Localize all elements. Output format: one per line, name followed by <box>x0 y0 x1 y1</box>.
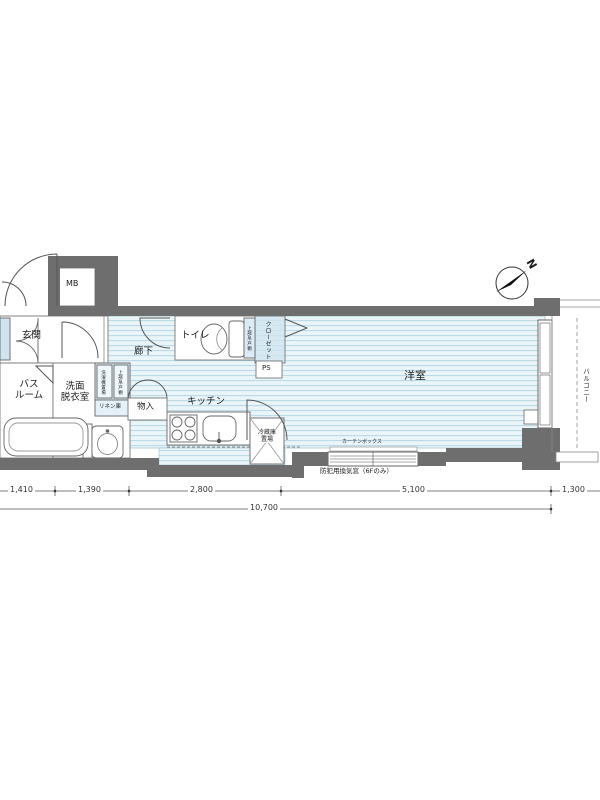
room-label-storage: 物入 <box>137 402 154 412</box>
compass-icon <box>496 267 528 299</box>
room-label-washroom: 洗面 脱衣室 <box>58 381 92 403</box>
sink <box>203 416 236 441</box>
room-label-pipe-space: PS <box>262 364 271 372</box>
room-label-entrance: 玄関 <box>22 330 41 341</box>
fixture-label-toilet-shelf: 上部吊戸棚 <box>246 320 251 356</box>
dimension-label-total: 10,700 <box>248 503 280 512</box>
fixture-label-security-window: 防犯用換気窓（6Fのみ） <box>320 468 393 476</box>
shoe-box <box>0 318 10 360</box>
dimension-label-2: 2,800 <box>188 485 215 494</box>
room-label-toilet: トイレ <box>181 330 210 341</box>
dimension-label-0: 1,410 <box>8 485 35 494</box>
fixture-label-washer: 洗濯機置場 <box>100 367 105 397</box>
room-label-meter-box: MB <box>66 279 78 288</box>
stove <box>170 415 197 442</box>
dimension-label-4: 1,300 <box>560 485 587 494</box>
bathtub <box>4 418 88 456</box>
room-label-hallway: 廊下 <box>134 346 153 357</box>
room-label-closet: クローゼット <box>264 318 270 362</box>
room-label-bathroom: バス ルーム <box>6 379 52 401</box>
dimension-label-1: 1,390 <box>76 485 103 494</box>
room-label-balcony: バルコニー <box>582 355 589 415</box>
fixture-label-linen: リネン庫 <box>99 404 121 410</box>
toilet-tank <box>229 321 244 357</box>
entrance-room <box>0 316 108 363</box>
floor-plan-page: MB 玄関 バス ルーム 洗面 脱衣室 廊下 トイレ クローゼット PS 物入 … <box>0 0 600 800</box>
fixture-label-washer-shelf: 上部吊戸棚 <box>117 367 122 397</box>
fixture-label-fridge: 冷蔵庫 置場 <box>253 429 281 443</box>
curtain-box-strip <box>330 447 417 451</box>
room-label-kitchen: キッチン <box>187 396 225 407</box>
room-label-western-room: 洋室 <box>404 370 426 383</box>
dimension-label-3: 5,100 <box>400 485 427 494</box>
fixture-label-curtain-box: カーテンボックス <box>342 440 382 446</box>
